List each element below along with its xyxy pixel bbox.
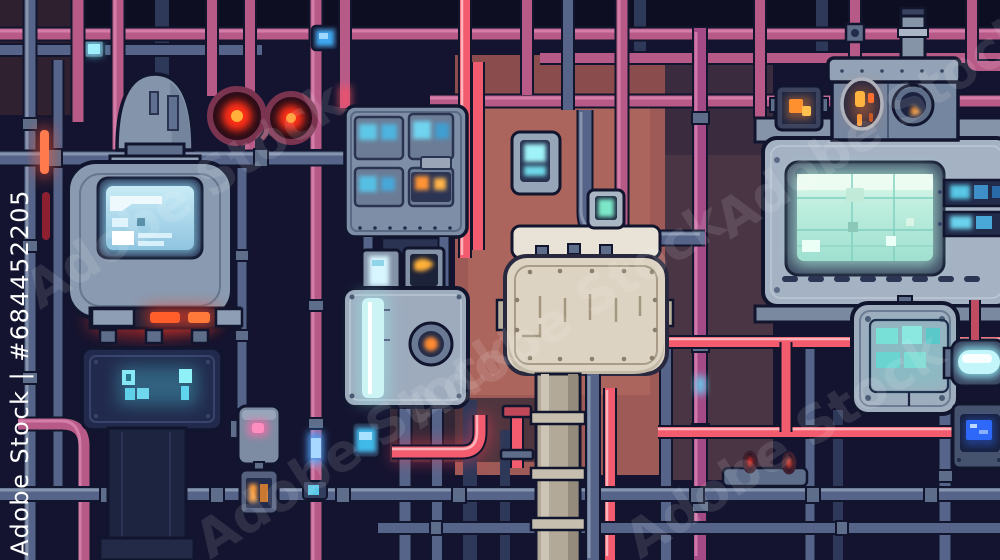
panel-screw: [94, 360, 98, 364]
rivet: [650, 356, 655, 361]
pipe-coupling: [235, 330, 249, 341]
rivet: [433, 226, 437, 230]
vent-slot: [808, 276, 824, 282]
light-strip-tab: [92, 309, 134, 326]
vent-slot: [938, 276, 954, 282]
cyan-tube-highlight: [368, 302, 372, 394]
vent-slot: [860, 276, 876, 282]
screen-widget: [846, 188, 864, 202]
light-strip-lamp: [150, 312, 180, 323]
rivet: [373, 226, 377, 230]
rivet: [358, 226, 362, 230]
pipe-flange: [806, 487, 820, 503]
pipe-flange: [452, 487, 466, 503]
robot-bolt: [192, 330, 208, 343]
cyan-pixel: [137, 388, 149, 399]
pink-lamp: [252, 423, 264, 433]
panel-screw: [957, 458, 961, 462]
panel-screw: [206, 360, 210, 364]
cyan-pixel-glyph: [126, 374, 131, 381]
vent-slot: [886, 276, 902, 282]
rivet: [880, 69, 884, 73]
panel-screw: [865, 316, 871, 322]
glow-bar-red-dim: [42, 192, 50, 240]
rivet: [448, 226, 452, 230]
boiler-fitting-hole: [851, 29, 859, 37]
blue-screen: [413, 121, 431, 139]
blue-screen: [359, 124, 377, 140]
device-cyan-screen: [524, 144, 546, 162]
panel-screw: [938, 222, 942, 226]
dome-detail: [150, 92, 158, 114]
mini-blue-screen: [974, 185, 988, 199]
dome-detail: [168, 96, 178, 130]
blue-screen-pixel: [970, 424, 977, 428]
column-coupling: [531, 468, 585, 480]
column-coupling: [531, 412, 585, 424]
screen-widget-dark: [848, 222, 858, 232]
device-green-screen: [598, 199, 614, 217]
porthole-gauge-glow: [424, 337, 438, 351]
label-plate: [421, 157, 451, 169]
chimney: [901, 16, 925, 62]
pipe-coupling: [308, 418, 324, 429]
pipe-coupling: [235, 250, 249, 261]
amber-screen: [434, 178, 446, 190]
magenta-pipe-cyan-lamp: [696, 376, 705, 394]
rivet: [558, 357, 563, 362]
rivet: [840, 69, 844, 73]
mini-blue-screen: [976, 216, 992, 229]
vent-slot: [912, 276, 928, 282]
panel-screw: [94, 414, 98, 418]
vent-slot: [964, 276, 980, 282]
rivet: [622, 357, 627, 362]
pipe-flange: [924, 487, 938, 503]
screen-widget: [886, 236, 896, 246]
rivet: [558, 269, 563, 274]
rivet: [418, 226, 422, 230]
panel-screw: [350, 295, 355, 300]
screen-widget: [906, 218, 914, 226]
panel-screw: [938, 190, 942, 194]
top-blue-screen-highlight: [319, 33, 328, 39]
connector-cyan-lamp: [88, 44, 100, 54]
chimney-band: [898, 28, 928, 37]
pipe-flange: [836, 521, 848, 535]
glow-bar-orange: [40, 130, 49, 174]
rivet: [388, 226, 392, 230]
vent-slot: [834, 276, 850, 282]
cylinder-highlight: [962, 354, 992, 363]
robot-bolt: [146, 330, 162, 343]
cyan-tube: [362, 298, 384, 398]
mini-blue-screen: [950, 216, 972, 229]
cyan-pixel: [181, 386, 189, 400]
rivet: [515, 298, 520, 303]
pipe-coupling: [22, 118, 38, 130]
light-strip-lamp: [188, 312, 210, 323]
column-coupling: [531, 518, 585, 530]
blue-screen: [359, 176, 377, 192]
stock-illustration-pipes-machinery: Adobe Stock Adobe Stock Adobe Stock Adob…: [0, 0, 1000, 560]
box-top-highlight: [242, 410, 276, 420]
cyan-pixel: [179, 369, 192, 383]
pipe-flange: [430, 521, 442, 535]
screen-widget: [802, 240, 820, 252]
hatch-bolt: [568, 244, 580, 254]
blue-screen: [381, 177, 395, 191]
panel-screw: [350, 394, 355, 399]
round-lamp-core: [231, 110, 243, 122]
pipe-coupling: [938, 470, 953, 482]
amber-screen: [415, 176, 429, 190]
blue-screen: [381, 124, 397, 140]
cyan-pixel: [125, 388, 135, 400]
pipe-coupling: [692, 112, 709, 124]
orange-screen-blob: [802, 106, 811, 116]
blue-screen: [435, 123, 449, 139]
robot-foot: [100, 538, 194, 560]
rivet: [860, 69, 864, 73]
valve-flange: [501, 450, 533, 459]
orange-screen-blob: [789, 99, 803, 113]
rivet: [653, 328, 658, 333]
device-cyan-screen2: [524, 166, 546, 176]
rivet: [528, 270, 533, 275]
mini-blue-screen: [950, 185, 970, 199]
valve-cap: [503, 406, 531, 417]
light-strip-tab: [216, 309, 242, 326]
scene-canvas: Adobe Stock Adobe Stock Adobe Stock Adob…: [0, 0, 1000, 560]
panel-screw: [774, 287, 780, 293]
rivet: [653, 298, 658, 303]
cyan-screen-line: [372, 260, 384, 266]
watermark-vertical-label: Adobe Stock | #684452205: [6, 189, 34, 556]
panel-screw: [939, 395, 945, 401]
vent-slot: [782, 276, 798, 282]
blue-screen-pixel: [979, 430, 988, 434]
rivet: [590, 357, 595, 362]
panel-screw: [206, 414, 210, 418]
rivet: [403, 226, 407, 230]
robot-bolt: [100, 330, 116, 343]
panel-screw: [457, 295, 462, 300]
mini-blue-screen: [992, 186, 1000, 198]
pipe-coupling: [308, 300, 324, 311]
